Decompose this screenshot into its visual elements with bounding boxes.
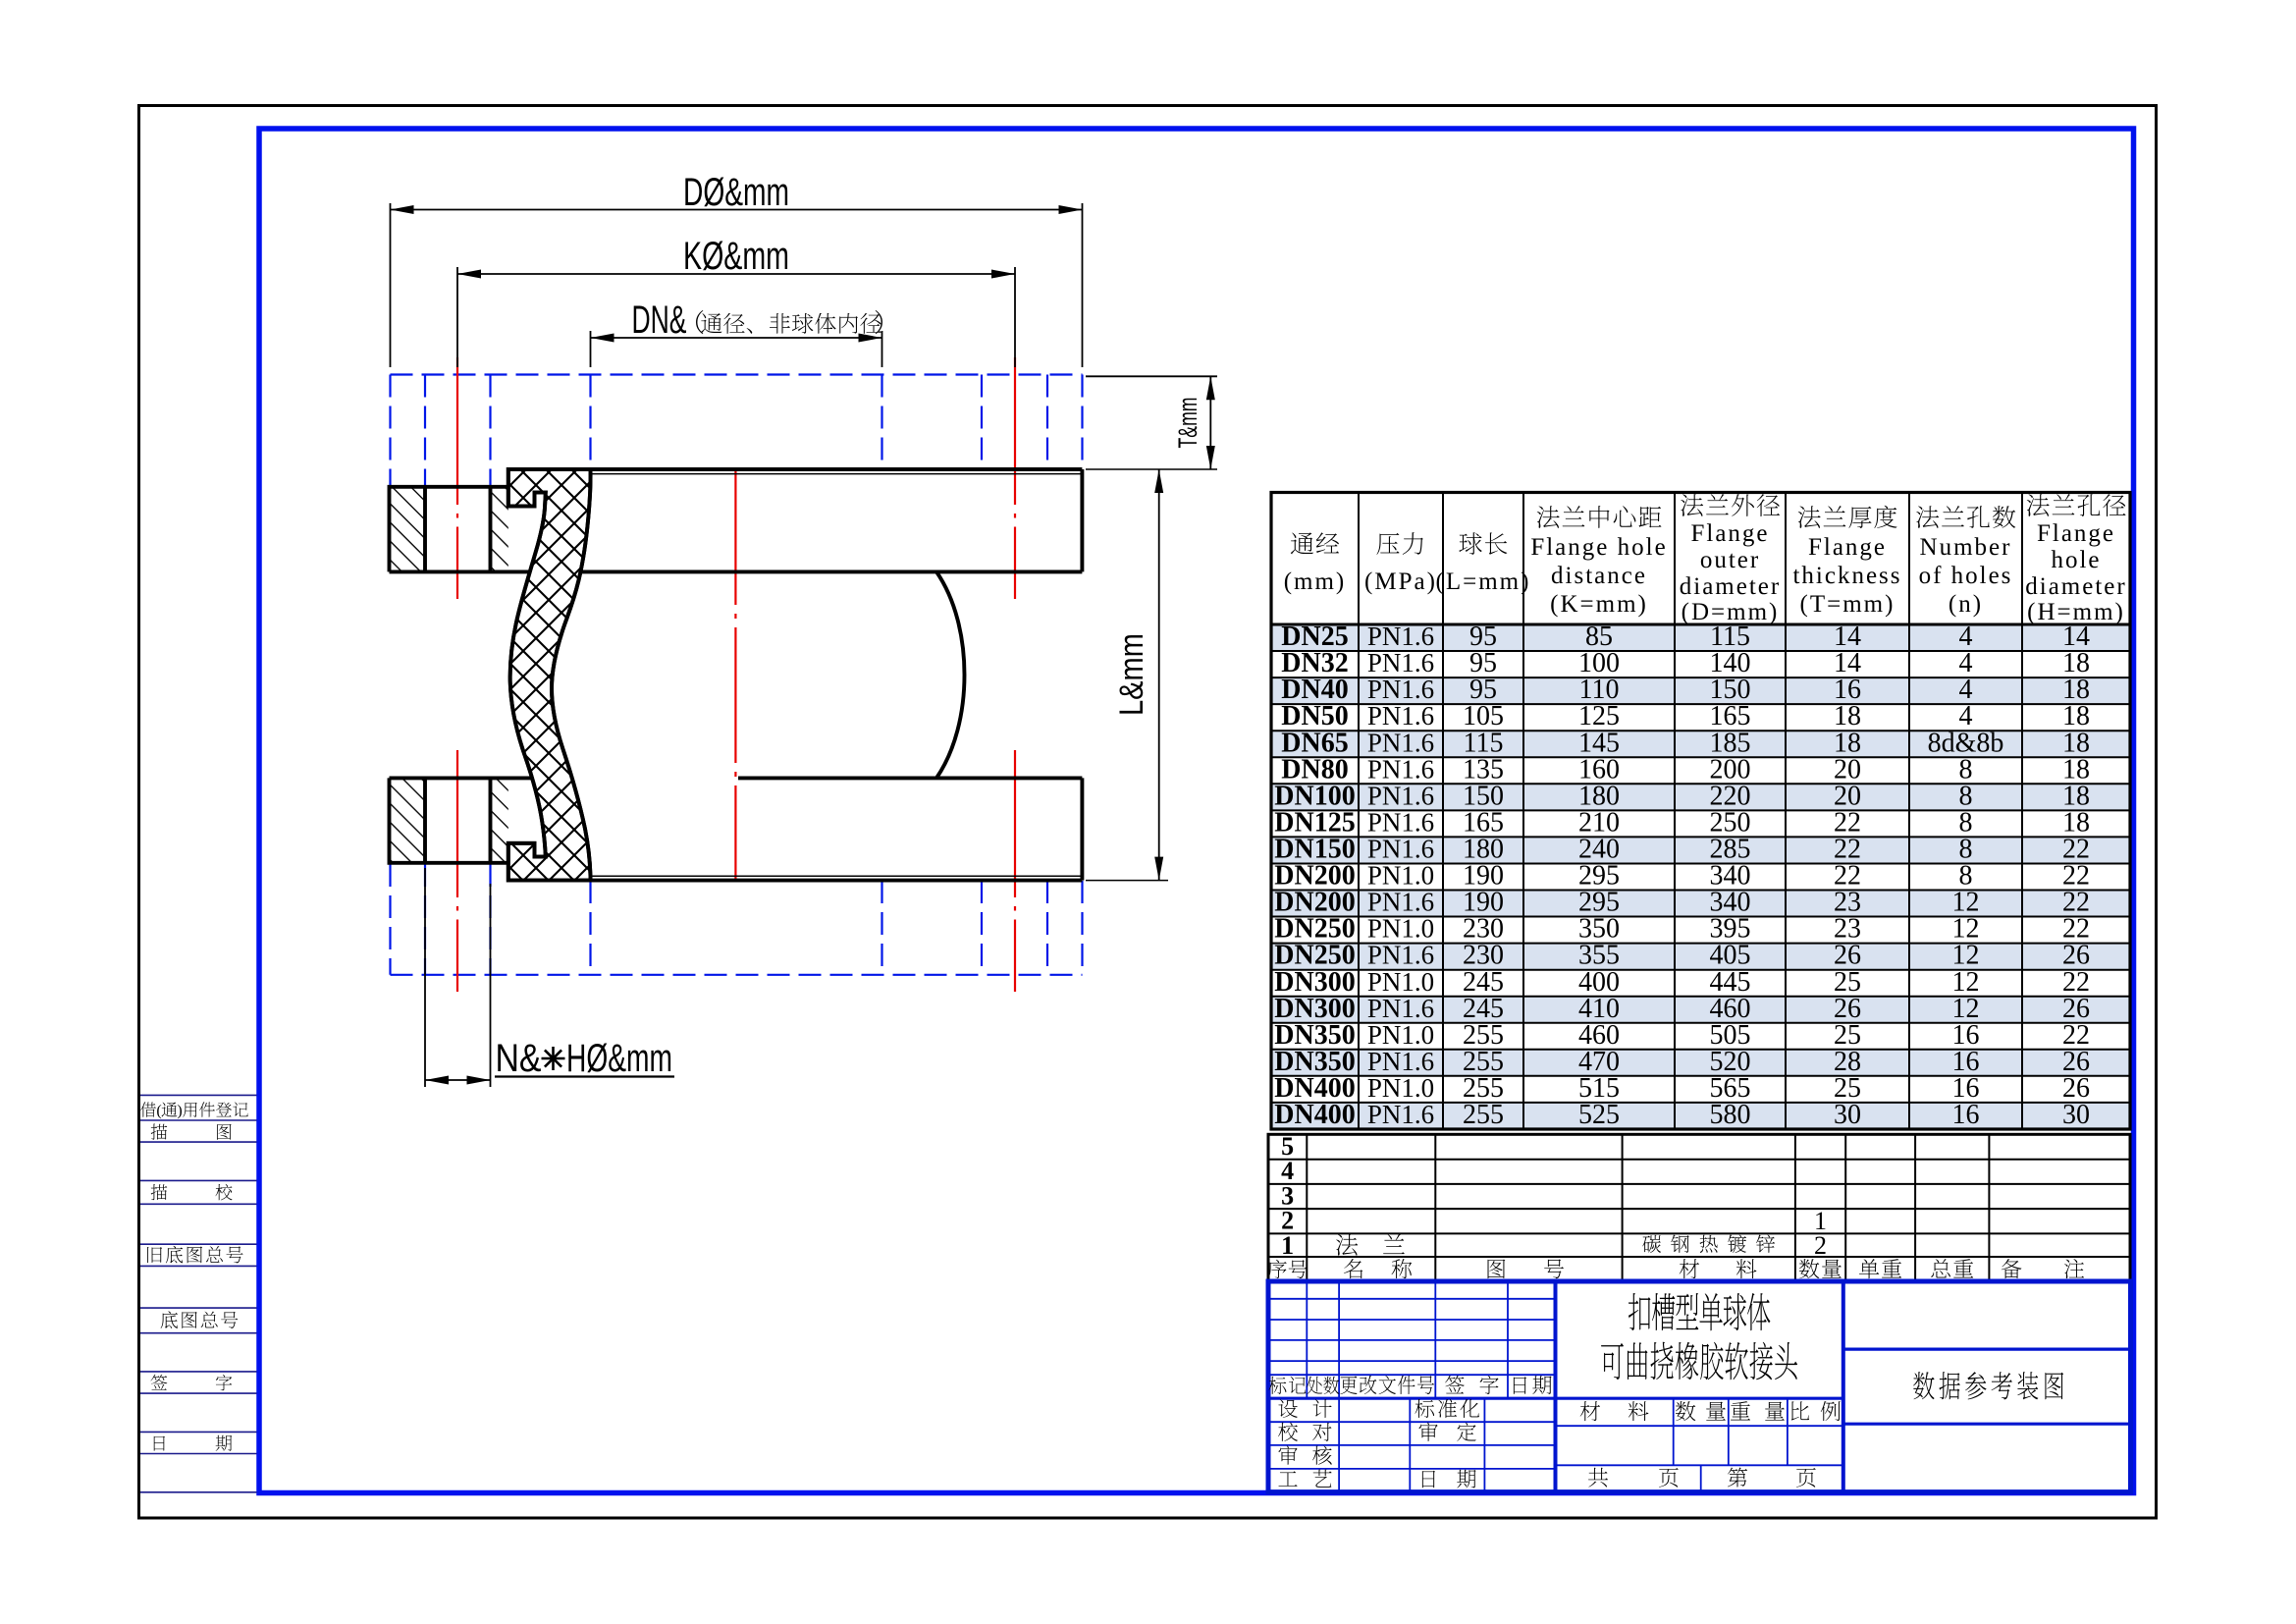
- svg-text:PN1.6: PN1.6: [1367, 648, 1434, 677]
- svg-text:of holes: of holes: [1919, 563, 2013, 589]
- svg-text:(K=mm): (K=mm): [1550, 591, 1648, 618]
- svg-text:thickness: thickness: [1792, 563, 1901, 589]
- svg-text:Flange: Flange: [1690, 520, 1769, 547]
- svg-text:PN1.6: PN1.6: [1367, 781, 1434, 810]
- svg-text:Flange: Flange: [1808, 534, 1887, 561]
- svg-text:PN1.0: PN1.0: [1367, 914, 1434, 944]
- svg-text:KØ&mm: KØ&mm: [683, 235, 789, 278]
- svg-text:30: 30: [2062, 1100, 2090, 1130]
- svg-text:PN1.6: PN1.6: [1367, 754, 1434, 784]
- svg-text:N&: N&: [496, 1037, 542, 1080]
- svg-text:L&mm: L&mm: [1113, 633, 1150, 716]
- svg-text:(n): (n): [1949, 591, 1983, 618]
- svg-text:(mm): (mm): [1284, 568, 1347, 595]
- svg-text:Number: Number: [1920, 534, 2012, 561]
- svg-text:(L=mm): (L=mm): [1436, 568, 1531, 595]
- svg-text:PN1.6: PN1.6: [1367, 701, 1434, 731]
- svg-text:hole: hole: [2051, 547, 2101, 573]
- svg-text:DN400: DN400: [1274, 1100, 1355, 1130]
- svg-text:PN1.6: PN1.6: [1367, 728, 1434, 757]
- svg-text:): ): [177, 1103, 182, 1119]
- svg-text:Flange: Flange: [2037, 520, 2115, 547]
- svg-text:PN1.6: PN1.6: [1367, 622, 1434, 651]
- svg-text:2: 2: [1814, 1231, 1827, 1260]
- svg-text:T&mm: T&mm: [1173, 398, 1202, 449]
- svg-text:DØ&mm: DØ&mm: [683, 171, 789, 214]
- svg-text:(T=mm): (T=mm): [1800, 591, 1896, 618]
- svg-text:Flange hole: Flange hole: [1530, 534, 1667, 561]
- svg-text:PN1.6: PN1.6: [1367, 941, 1434, 970]
- svg-text:DN&: DN&: [632, 298, 687, 342]
- svg-text:PN1.6: PN1.6: [1367, 888, 1434, 917]
- svg-text:PN1.6: PN1.6: [1367, 994, 1434, 1023]
- svg-text:PN1.6: PN1.6: [1367, 835, 1434, 864]
- svg-text:outer: outer: [1700, 547, 1760, 573]
- svg-text:PN1.0: PN1.0: [1367, 861, 1434, 891]
- svg-text:PN1.6: PN1.6: [1367, 675, 1434, 704]
- svg-text:525: 525: [1578, 1100, 1620, 1130]
- svg-text:PN1.0: PN1.0: [1367, 1073, 1434, 1103]
- svg-text:PN1.6: PN1.6: [1367, 1100, 1434, 1129]
- svg-text:PN1.6: PN1.6: [1367, 808, 1434, 838]
- svg-text:(MPa): (MPa): [1364, 568, 1437, 595]
- svg-text:distance: distance: [1551, 563, 1647, 589]
- svg-text:diameter: diameter: [2025, 573, 2126, 600]
- svg-text:255: 255: [1463, 1100, 1504, 1130]
- svg-text:30: 30: [1834, 1100, 1861, 1130]
- svg-text:16: 16: [1952, 1100, 1980, 1130]
- svg-text:PN1.6: PN1.6: [1367, 1047, 1434, 1076]
- svg-text:diameter: diameter: [1680, 573, 1781, 600]
- svg-text:1: 1: [1281, 1231, 1294, 1260]
- svg-text:HØ&mm: HØ&mm: [566, 1037, 672, 1080]
- svg-text:580: 580: [1710, 1100, 1751, 1130]
- svg-text:PN1.0: PN1.0: [1367, 1020, 1434, 1050]
- svg-text:(: (: [156, 1103, 161, 1119]
- svg-text:PN1.0: PN1.0: [1367, 967, 1434, 997]
